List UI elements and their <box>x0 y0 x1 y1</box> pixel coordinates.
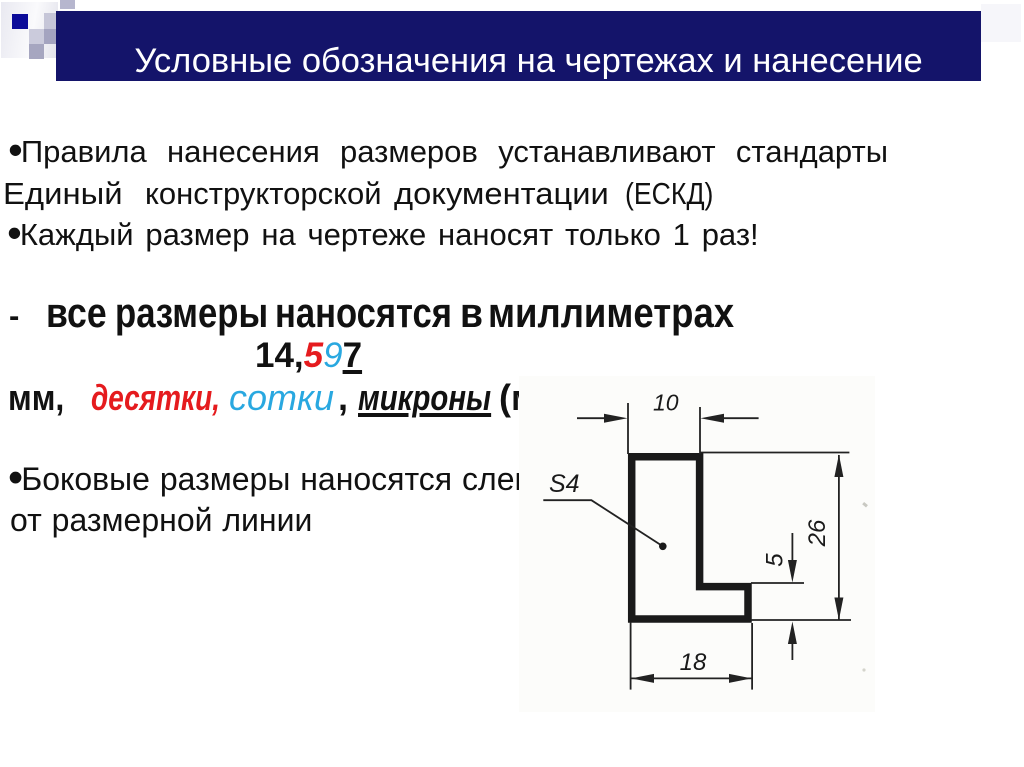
svg-text:18: 18 <box>680 649 707 676</box>
svg-text:S4: S4 <box>549 470 580 498</box>
svg-text:5: 5 <box>761 553 788 567</box>
svg-text:26: 26 <box>804 519 831 547</box>
svg-text:10: 10 <box>653 390 679 416</box>
